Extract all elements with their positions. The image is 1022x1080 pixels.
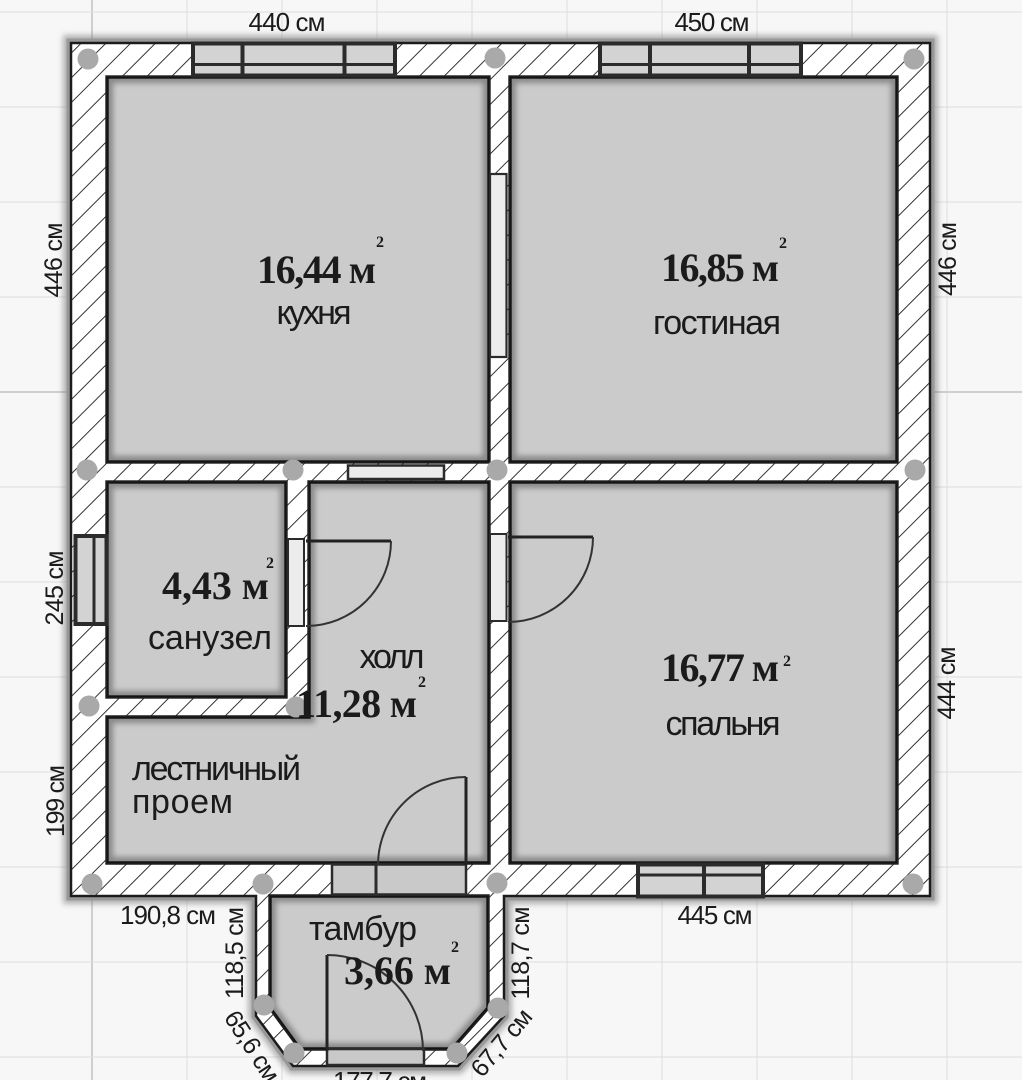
svg-text:446 см: 446 см xyxy=(40,223,68,298)
svg-text:445 см: 445 см xyxy=(678,900,753,930)
svg-text:кухня: кухня xyxy=(277,294,352,332)
svg-text:446 см: 446 см xyxy=(934,222,962,296)
svg-text:холл: холл xyxy=(360,638,425,676)
svg-text:спальня: спальня xyxy=(666,705,781,743)
svg-text:2: 2 xyxy=(451,939,459,956)
svg-text:гостиная: гостиная xyxy=(653,304,781,342)
svg-text:санузел: санузел xyxy=(148,619,272,657)
svg-text:2: 2 xyxy=(418,674,426,691)
svg-text:118,7 см: 118,7 см xyxy=(507,907,535,1000)
svg-text:2: 2 xyxy=(779,235,787,252)
svg-text:2: 2 xyxy=(783,653,791,670)
svg-text:440 см: 440 см xyxy=(249,7,326,37)
svg-text:4,43 м: 4,43 м xyxy=(162,563,269,608)
svg-text:177,7 см: 177,7 см xyxy=(333,1066,427,1080)
svg-text:тамбур: тамбур xyxy=(309,910,417,948)
svg-text:16,44 м: 16,44 м xyxy=(257,247,376,292)
svg-text:118,5 см: 118,5 см xyxy=(221,907,249,999)
svg-text:16,85 м: 16,85 м xyxy=(661,245,779,290)
svg-text:11,28 м: 11,28 м xyxy=(296,681,417,726)
svg-text:2: 2 xyxy=(376,234,384,251)
svg-text:16,77 м: 16,77 м xyxy=(661,645,779,690)
svg-text:199 см: 199 см xyxy=(42,765,70,837)
svg-text:190,8 см: 190,8 см xyxy=(120,900,216,930)
svg-text:450 см: 450 см xyxy=(675,7,750,37)
svg-text:2: 2 xyxy=(266,555,274,572)
svg-text:245 см: 245 см xyxy=(41,551,69,626)
svg-text:3,66 м: 3,66 м xyxy=(344,948,451,993)
svg-text:444 см: 444 см xyxy=(933,647,961,720)
svg-text:проем: проем xyxy=(132,783,233,821)
